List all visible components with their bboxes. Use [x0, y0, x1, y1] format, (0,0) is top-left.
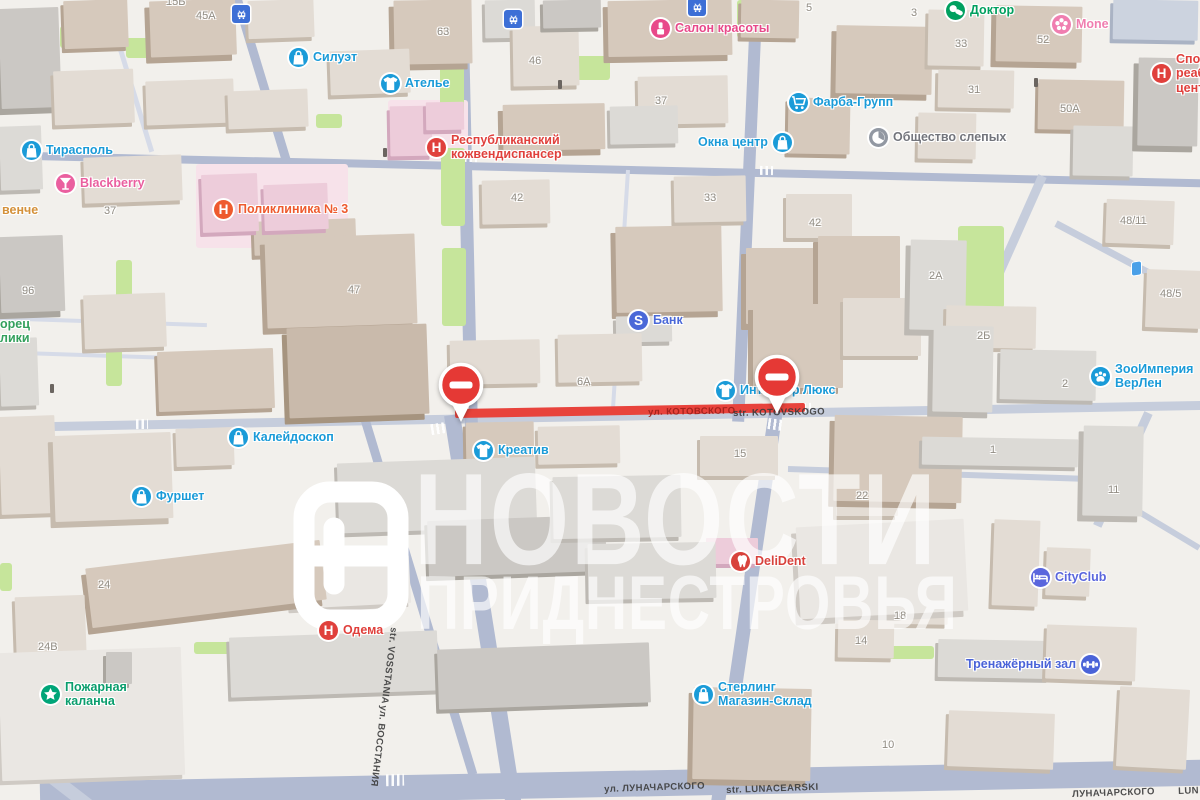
building	[157, 348, 275, 412]
poi-salon-krasoty[interactable]: Салон красоты	[651, 19, 769, 38]
street-name-label: LUN	[1178, 785, 1199, 797]
bed-icon	[1031, 568, 1050, 587]
building	[0, 7, 62, 109]
monument-icon	[558, 80, 562, 89]
trolleybus-stop-icon[interactable]	[232, 5, 250, 23]
poi-trenazherny-zal[interactable]: Тренажёрный зал	[966, 655, 1100, 674]
building	[922, 437, 1078, 468]
poi-label: Калейдоскоп	[253, 430, 334, 444]
poi-label: DeliDent	[755, 554, 806, 568]
poi-sport-reab-centr[interactable]: НСпорреабцент	[1152, 52, 1200, 95]
tshirt-icon	[474, 441, 493, 460]
building	[264, 233, 417, 328]
building	[1000, 349, 1097, 401]
building	[83, 293, 167, 350]
poi-zooimperia-verlen[interactable]: ЗооИмперияВерЛен	[1091, 362, 1193, 391]
building	[247, 0, 314, 39]
poi-label: орецлики	[0, 317, 30, 346]
street-name-label: ул. КОТОВСКОГО	[648, 405, 736, 418]
house-number: 2A	[929, 270, 942, 282]
poi-delident[interactable]: DeliDent	[731, 552, 806, 571]
building	[0, 235, 65, 313]
dumbbell-icon	[1081, 655, 1100, 674]
building	[227, 89, 308, 130]
building	[1038, 79, 1125, 130]
house-number: 14	[855, 635, 867, 647]
poi-mone[interactable]: Mone	[1052, 15, 1109, 34]
poi-label: CityClub	[1055, 570, 1106, 584]
poi-kreativ[interactable]: Креатив	[474, 441, 549, 460]
building	[796, 519, 969, 620]
poi-label: Республиканскийкожвендиспансер	[451, 133, 562, 162]
house-number: 3	[911, 7, 917, 19]
poi-label: Blackberry	[80, 176, 145, 190]
poi-label: Общество слепых	[893, 130, 1006, 144]
svg-text:S: S	[634, 313, 643, 328]
poi-poliklinika-3[interactable]: НПоликлиника № 3	[214, 200, 348, 219]
tshirt-icon	[381, 74, 400, 93]
building	[0, 415, 58, 515]
house-number: 42	[809, 217, 821, 229]
poi-label: Фарба-Групп	[813, 95, 893, 109]
building	[53, 432, 174, 522]
poi-blackberry[interactable]: Blackberry	[56, 174, 145, 193]
building	[175, 427, 234, 467]
poi-label: венче	[2, 203, 38, 217]
hospital-icon: Н	[427, 138, 446, 157]
poi-label: Салон красоты	[675, 21, 769, 35]
house-number: 46	[529, 55, 541, 67]
poi-sterling[interactable]: СтерлингМагазин-Склад	[694, 680, 812, 709]
cocktail-icon	[56, 174, 75, 193]
poi-odema[interactable]: НОдема	[319, 621, 383, 640]
monument-icon	[1034, 78, 1038, 87]
svg-text:Н: Н	[324, 623, 334, 638]
star-icon	[41, 685, 60, 704]
building	[63, 0, 129, 49]
building	[947, 710, 1055, 770]
bag-icon	[132, 487, 151, 506]
building	[512, 25, 579, 86]
poi-siluet[interactable]: Силуэт	[289, 48, 357, 67]
monument-icon	[383, 148, 387, 157]
bag-icon	[229, 428, 248, 447]
poi-label: Ателье	[405, 76, 450, 90]
bag-icon	[773, 133, 792, 152]
house-number: 31	[968, 84, 980, 96]
building	[286, 324, 429, 419]
house-number: 24В	[38, 641, 58, 653]
poi-doktor[interactable]: Доктор	[946, 1, 1014, 20]
house-number: 6A	[577, 376, 590, 388]
building	[0, 337, 39, 406]
building	[53, 69, 135, 126]
building	[1073, 125, 1134, 176]
house-number: 2Б	[977, 330, 990, 342]
pills-icon	[946, 1, 965, 20]
building	[229, 630, 439, 697]
building	[538, 425, 621, 464]
house-number: 10	[882, 739, 894, 751]
building	[149, 0, 237, 57]
crosswalk	[767, 418, 783, 431]
house-number: 48/11	[1120, 215, 1147, 227]
street-name-label: str. LUNACEARSKI	[726, 782, 819, 796]
bag-icon	[694, 685, 713, 704]
bag-icon	[22, 141, 41, 160]
house-number: 33	[955, 38, 967, 50]
tshirt-icon	[716, 381, 735, 400]
building	[145, 78, 234, 125]
cart-icon	[789, 93, 808, 112]
house-number: 96	[22, 285, 34, 297]
house-number: 2	[1062, 378, 1068, 390]
house-number: 22	[856, 490, 868, 502]
poi-kozhvendispanser[interactable]: НРеспубликанскийкожвендиспансер	[427, 133, 562, 162]
poi-label: Силуэт	[313, 50, 357, 64]
svg-text:Н: Н	[1157, 66, 1167, 81]
building	[835, 25, 932, 95]
lipstick-icon	[651, 19, 670, 38]
house-number: 52	[1037, 34, 1049, 46]
poi-label: Креатив	[498, 443, 549, 457]
poi-label: ЗооИмперияВерЛен	[1115, 362, 1193, 391]
monument-icon	[50, 384, 54, 393]
building	[437, 642, 651, 709]
building	[426, 102, 464, 131]
building	[588, 542, 717, 600]
bank-icon: S	[629, 311, 648, 330]
green-area	[442, 248, 466, 326]
hospital-icon: Н	[319, 621, 338, 640]
crosswalk	[386, 774, 404, 787]
building	[1082, 425, 1144, 516]
bag-icon	[289, 48, 308, 67]
house-number: 50A	[1060, 103, 1080, 115]
street-name-label: ЛУНАЧАРСКОГО	[1072, 786, 1155, 800]
house-number: 1	[990, 444, 996, 456]
building	[85, 540, 327, 628]
hospital-icon: Н	[214, 200, 233, 219]
no-entry-sign-pin[interactable]	[438, 362, 484, 424]
house-number: 24	[98, 579, 110, 591]
tooth-icon	[731, 552, 750, 571]
trolleybus-stop-icon[interactable]	[504, 10, 522, 28]
poi-dvorec-respubliki[interactable]: орецлики	[0, 317, 30, 346]
poi-label: Пожарнаякаланча	[65, 680, 127, 709]
building	[992, 519, 1041, 607]
poi-label: Фуршет	[156, 489, 204, 503]
paw-icon	[1091, 367, 1110, 386]
poi-label: Тренажёрный зал	[966, 657, 1076, 671]
house-number: 11	[1108, 484, 1119, 496]
poi-label: Mone	[1076, 17, 1109, 31]
poi-bank[interactable]: SБанк	[629, 311, 683, 330]
building	[0, 647, 185, 781]
poi-label: Тирасполь	[46, 143, 113, 157]
hospital-icon: Н	[1152, 64, 1171, 83]
building	[1113, 0, 1199, 41]
poi-pozharnaya-kalancha[interactable]: Пожарнаякаланча	[41, 680, 127, 709]
building	[786, 194, 852, 238]
house-number: 47	[348, 284, 360, 296]
trolleybus-stop-icon[interactable]	[688, 0, 706, 16]
svg-text:Н: Н	[219, 202, 229, 217]
building	[610, 105, 679, 144]
house-number: 42	[511, 192, 523, 204]
green-area	[316, 114, 342, 128]
house-number: 15	[734, 448, 746, 460]
poi-tiraspol[interactable]: Тирасполь	[22, 141, 113, 160]
stop-marker-icon[interactable]	[1132, 261, 1141, 275]
poi-label: СтерлингМагазин-Склад	[718, 680, 812, 709]
green-area	[0, 563, 12, 591]
flower-icon	[1052, 15, 1071, 34]
poi-label: Спорреабцент	[1176, 52, 1200, 95]
house-number: 15Б	[166, 0, 185, 8]
house-number: 18	[894, 610, 906, 622]
house-number: 33	[704, 192, 716, 204]
poi-venche[interactable]: венче	[2, 203, 38, 217]
building	[558, 333, 643, 382]
building	[552, 475, 681, 539]
house-number: 45A	[196, 10, 216, 22]
poi-farba-grupp[interactable]: Фарба-Групп	[789, 93, 893, 112]
poi-label: Банк	[653, 313, 683, 327]
house-number: 37	[104, 205, 116, 217]
poi-label: Окна центр	[698, 135, 768, 149]
building	[1116, 686, 1190, 770]
house-number: 63	[437, 26, 449, 38]
building	[615, 225, 722, 313]
poi-label: Поликлиника № 3	[238, 202, 348, 216]
blind-icon	[869, 128, 888, 147]
poi-kaleidoskop[interactable]: Калейдоскоп	[229, 428, 334, 447]
poi-atelier[interactable]: Ателье	[381, 74, 450, 93]
green-area	[576, 56, 610, 80]
house-number: 37	[655, 95, 667, 107]
crosswalk	[136, 419, 148, 429]
house-number: 5	[806, 2, 812, 14]
poi-label: Одема	[343, 623, 383, 637]
crosswalk	[760, 166, 773, 175]
poi-cityclub[interactable]: CityClub	[1031, 568, 1106, 587]
poi-okna-centr[interactable]: Окна центр	[698, 133, 792, 152]
map-canvas[interactable]: 15Б45A6346375333523150A48/112A48/52Б2374…	[0, 0, 1200, 800]
building	[543, 0, 601, 29]
poi-label: Доктор	[970, 3, 1014, 17]
house-number: 48/5	[1160, 288, 1181, 300]
poi-obschestvo-slepyh[interactable]: Общество слепых	[869, 128, 1006, 147]
poi-furshet[interactable]: Фуршет	[132, 487, 204, 506]
no-entry-sign-pin[interactable]	[754, 354, 800, 416]
svg-text:Н: Н	[432, 140, 442, 155]
